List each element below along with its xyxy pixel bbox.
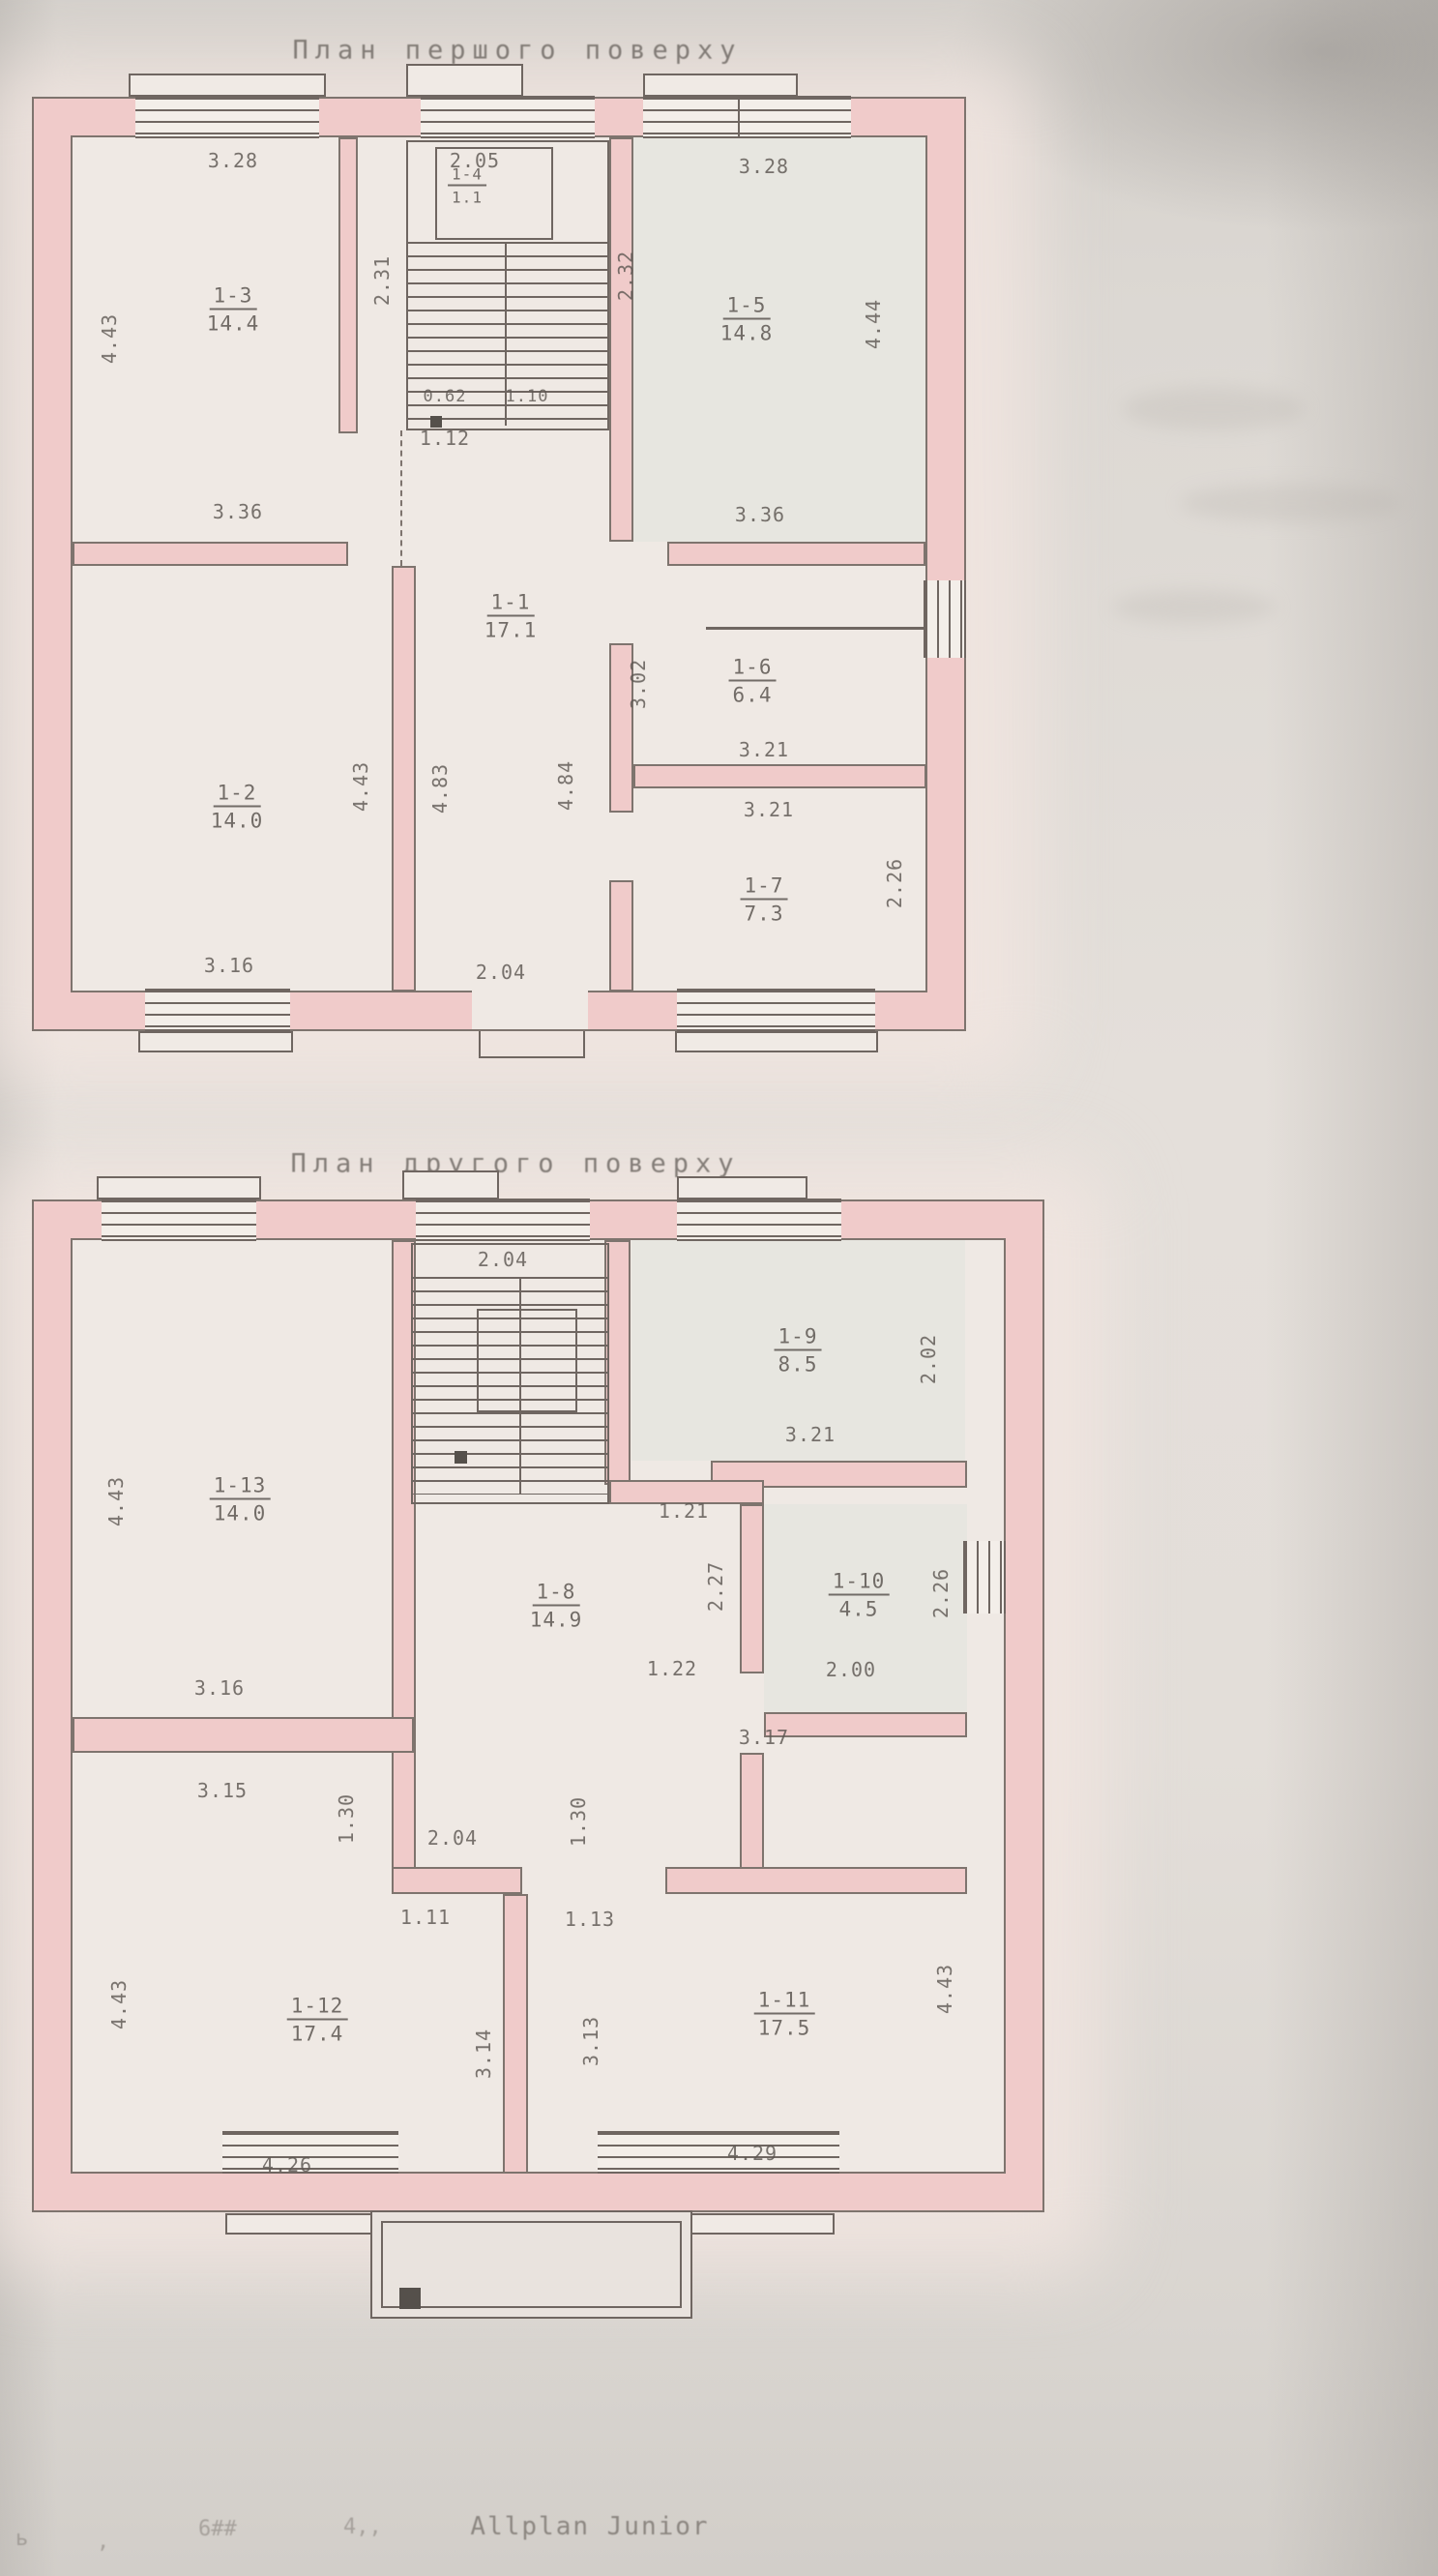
window — [598, 2131, 839, 2174]
dim-room11-left: 3.13 — [579, 2016, 602, 2066]
wall-room3-vestibule — [338, 137, 358, 433]
window — [416, 1199, 590, 1241]
dim-room6-bottom: 3.21 — [739, 738, 789, 761]
dim-stair-top: 2.04 — [478, 1248, 528, 1271]
balcony-post — [399, 2288, 421, 2309]
stoop-line — [479, 1031, 481, 1058]
scan-smudge — [1180, 484, 1402, 522]
floor1-plan: 3.28 2.05 3.28 2.31 2.32 4.43 4.44 0.62 … — [32, 97, 966, 1031]
room-label-1-5: 1-5 14.8 — [720, 294, 774, 345]
dim-room12-bottom: 4.26 — [262, 2153, 312, 2176]
wall-hall-bottom-left — [392, 1867, 522, 1894]
window-mullion — [738, 96, 740, 138]
window — [677, 1199, 841, 1241]
room-number: 1-4 — [448, 165, 486, 187]
dim-room10-right: 2.26 — [929, 1568, 953, 1618]
room-area: 17.1 — [484, 619, 538, 642]
dim-room9-bottom: 3.21 — [785, 1423, 836, 1446]
dim-hall-right-mid: 2.27 — [704, 1561, 727, 1612]
room-label-1-7: 1-7 7.3 — [741, 874, 788, 926]
dim-room12-top: 3.15 — [197, 1779, 248, 1802]
dim-segment-right: 1.30 — [567, 1796, 590, 1847]
dim-wall-113: 1.13 — [565, 1908, 615, 1931]
room-number: 1-1 — [487, 591, 535, 617]
wall-hall-bottom-right — [665, 1867, 967, 1894]
room-area: 14.4 — [207, 312, 260, 336]
footer-mark: ь — [15, 2527, 28, 2551]
stoop-line — [479, 1056, 585, 1058]
floor2-plan: 2.04 4.43 3.21 2.02 1.21 2.27 1.22 2.26 … — [32, 1199, 1044, 2212]
room-area: 14.9 — [530, 1609, 583, 1632]
room-number: 1-13 — [210, 1474, 271, 1500]
stair-flight-box — [477, 1309, 577, 1412]
window-sill — [97, 1176, 261, 1199]
window-sill — [138, 1031, 293, 1052]
window — [102, 1199, 256, 1241]
wall-room13-room12 — [73, 1717, 414, 1753]
window — [924, 580, 966, 658]
room-number: 1-9 — [775, 1325, 822, 1351]
room-area: 6.4 — [729, 684, 777, 707]
dim-hall-right-bottom: 1.22 — [647, 1657, 697, 1680]
room-number: 1-3 — [210, 284, 257, 311]
room-number: 1-6 — [729, 656, 777, 682]
window — [421, 96, 595, 138]
dim-room5-top: 3.28 — [739, 155, 789, 178]
window — [677, 989, 875, 1031]
dim-room3-top: 3.28 — [208, 149, 258, 172]
window — [135, 96, 319, 138]
wall-hall-right-upper — [740, 1504, 764, 1673]
dim-hall-right-top: 1.21 — [659, 1499, 709, 1523]
dim-room11-bottom: 4.29 — [727, 2142, 778, 2165]
window — [643, 96, 851, 138]
room-label-1-2: 1-2 14.0 — [211, 782, 264, 833]
scanned-floorplan-page: План першого поверху — [0, 0, 1438, 2576]
hall-dashed-boundary — [400, 430, 402, 566]
room-area: 7.3 — [741, 903, 788, 926]
wall-room6-room7 — [633, 764, 926, 788]
scan-smudge — [1122, 387, 1306, 430]
room-area: 17.5 — [754, 2017, 815, 2040]
room-label-1-4: 1-4 1.1 — [448, 165, 486, 207]
dim-room10-bottom: 2.00 — [826, 1658, 876, 1681]
dim-stair-right: 2.32 — [614, 251, 637, 301]
room-number: 1-5 — [723, 294, 771, 320]
balcony — [370, 2210, 692, 2319]
dim-room2-right: 4.43 — [349, 761, 372, 812]
room-label-1-10: 1-10 4.5 — [829, 1570, 890, 1621]
scan-smudge — [1112, 590, 1277, 624]
wall-room3-room2 — [73, 542, 348, 566]
dim-stair-width1: 0.62 — [424, 387, 467, 406]
room-label-1-11: 1-11 17.5 — [754, 1989, 815, 2040]
dim-hall-left: 4.83 — [428, 763, 452, 814]
room-number: 1-8 — [533, 1581, 580, 1607]
allplan-watermark: Allplan Junior — [470, 2512, 709, 2541]
room-area: 4.5 — [829, 1598, 890, 1621]
balcony-inner-line — [381, 2221, 682, 2308]
wall-room5-room6 — [667, 542, 925, 566]
stoop-line — [583, 1031, 585, 1058]
dim-room7-top: 3.21 — [744, 798, 794, 821]
room-number: 1-7 — [741, 874, 788, 901]
dim-room13-left: 4.43 — [104, 1476, 128, 1526]
entry-porch — [406, 64, 523, 97]
dim-wall-111: 1.11 — [400, 1906, 451, 1929]
wall-hall-room2 — [392, 566, 416, 992]
window-sill — [643, 74, 798, 97]
room-area: 14.0 — [211, 810, 264, 833]
stair-mark — [455, 1451, 467, 1464]
room-area: 14.0 — [210, 1502, 271, 1525]
entry-door-opening — [472, 989, 588, 1029]
dim-room2-bottom: 3.16 — [204, 954, 254, 977]
dim-room11-right: 4.43 — [933, 1964, 956, 2014]
dim-room12-left: 4.43 — [107, 1979, 131, 2029]
dim-room9-right: 2.02 — [917, 1334, 940, 1384]
dim-room13-bottom: 3.16 — [194, 1676, 245, 1700]
room-area: 8.5 — [775, 1353, 822, 1377]
floor1-title: План першого поверху — [292, 36, 742, 66]
window-sill — [402, 1170, 499, 1199]
dim-hall-door: 2.04 — [476, 961, 526, 984]
wall-room10-bottom — [764, 1712, 967, 1737]
window — [145, 989, 290, 1031]
window — [963, 1541, 1006, 1614]
floor2-title: План другого поверху — [290, 1149, 740, 1179]
dim-room12-right: 3.14 — [472, 2028, 495, 2079]
room-label-1-8: 1-8 14.9 — [530, 1581, 583, 1632]
room-number: 1-12 — [287, 1995, 348, 2021]
dim-stair-width2: 1.10 — [506, 387, 549, 406]
footer-mark: 4,, — [343, 2515, 382, 2539]
room-number: 1-10 — [829, 1570, 890, 1596]
wall-hall-right-lower — [740, 1753, 764, 1869]
dim-stair-left: 2.31 — [370, 255, 394, 306]
dim-room3-bottom: 3.36 — [213, 500, 263, 523]
room-area: 17.4 — [287, 2023, 348, 2046]
room-number: 1-2 — [214, 782, 261, 808]
room-area: 14.8 — [720, 322, 774, 345]
dim-room7-right: 2.26 — [883, 858, 906, 908]
wall-hall-room7 — [609, 880, 633, 992]
window-sill — [129, 74, 326, 97]
window-sill — [677, 1176, 807, 1199]
dim-stair-below: 1.12 — [420, 427, 470, 450]
room-area: 1.1 — [448, 189, 486, 207]
room-label-1-13: 1-13 14.0 — [210, 1474, 271, 1525]
dim-hall-door: 2.04 — [427, 1826, 478, 1850]
room-number: 1-11 — [754, 1989, 815, 2015]
wall-stairs-room5 — [609, 137, 633, 542]
dim-hall-right: 4.84 — [554, 760, 577, 811]
dim-room5-right: 4.44 — [862, 299, 885, 349]
footer-mark: , — [97, 2530, 109, 2554]
dim-segment-left: 1.30 — [335, 1793, 358, 1844]
footer-mark: 6## — [198, 2517, 237, 2541]
window-sill — [675, 1031, 878, 1052]
dim-room6-left: 3.02 — [627, 659, 650, 709]
room-label-1-12: 1-12 17.4 — [287, 1995, 348, 2046]
dim-room3-left: 4.43 — [98, 313, 121, 364]
room-label-1-3: 1-3 14.4 — [207, 284, 260, 336]
dim-room5-bottom: 3.36 — [735, 503, 785, 526]
room-label-1-6: 1-6 6.4 — [729, 656, 777, 707]
room-label-1-9: 1-9 8.5 — [775, 1325, 822, 1377]
room6-counter-line — [706, 627, 924, 630]
room-label-1-1: 1-1 17.1 — [484, 591, 538, 642]
dim-corridor: 3.17 — [739, 1726, 789, 1749]
wall-room12-room11 — [503, 1894, 528, 2174]
